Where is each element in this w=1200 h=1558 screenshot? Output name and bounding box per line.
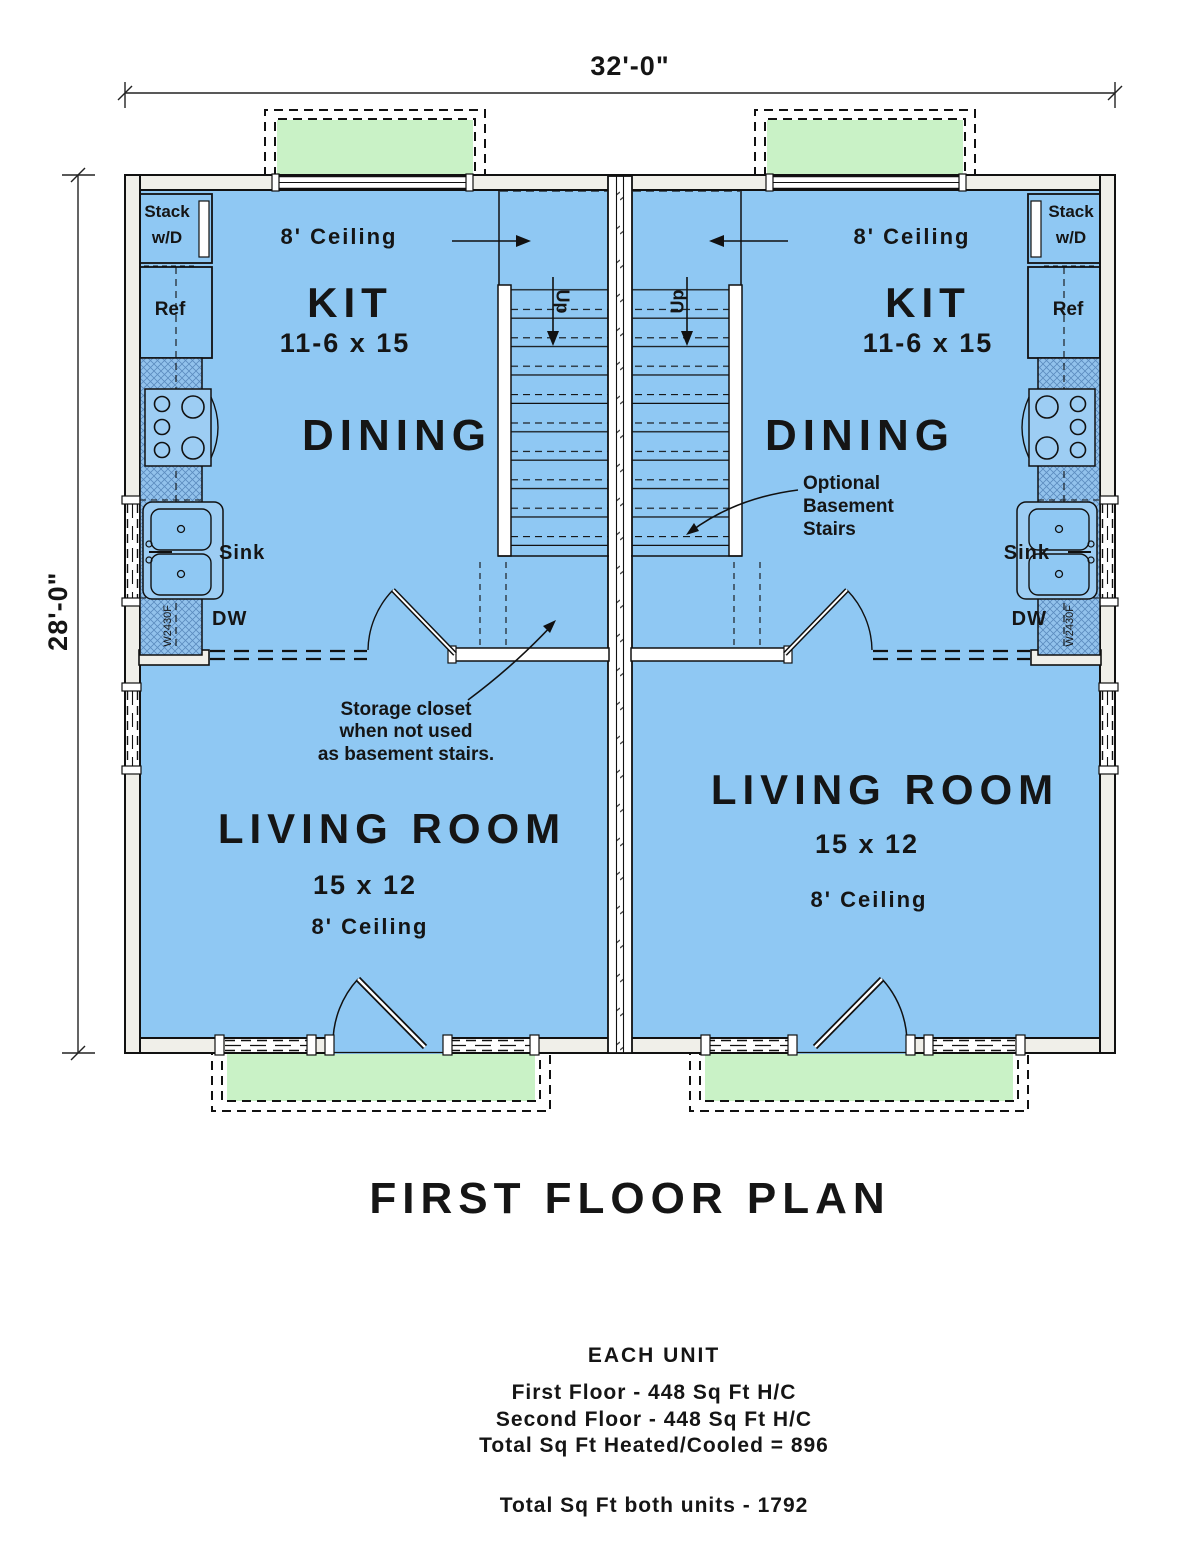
- sink-label-right: Sink: [958, 543, 1050, 564]
- sink-label-left: Sink: [219, 543, 265, 564]
- kitchen-label-right: KIT: [828, 281, 1028, 325]
- range-stove: [145, 389, 218, 466]
- porch-bottom-left: [227, 1053, 535, 1101]
- optional-note-right: Optional Basement Stairs: [803, 472, 963, 542]
- porch-top-left: [277, 120, 473, 176]
- living-room-label-right: LIVING ROOM: [710, 768, 1060, 812]
- living-ceiling-left: 8' Ceiling: [270, 915, 470, 938]
- kitchen-size-left: 11-6 x 15: [245, 329, 445, 357]
- footer-first-floor: First Floor - 448 Sq Ft H/C: [354, 1382, 954, 1404]
- note-line2: when not used: [300, 721, 512, 743]
- range-stove: [1022, 389, 1095, 466]
- note-line1: Storage closet: [300, 699, 512, 721]
- up-label-left: Up: [553, 279, 572, 323]
- wall-right: [1100, 175, 1115, 1053]
- party-wall: [608, 176, 632, 1053]
- kitchen-ceiling-label-right: 8' Ceiling: [812, 225, 1012, 248]
- note-line3: as basement stairs.: [300, 744, 512, 766]
- dimension-height-label: 28'-0": [44, 561, 72, 661]
- dimension-width-label: 32'-0": [560, 52, 700, 80]
- cabinet-code-right: W2430F: [1065, 586, 1077, 666]
- kitchen-label-left: KIT: [250, 281, 450, 325]
- living-size-left: 15 x 12: [265, 871, 465, 899]
- note-line3: Stairs: [803, 518, 963, 541]
- floor-plan-page: 32'-0" 28'-0" 8' Ceiling KIT 11-6 x 15 D…: [0, 0, 1200, 1558]
- stack-wd-label-left: Stack w/D: [136, 199, 198, 252]
- closet-wall: [455, 648, 609, 661]
- kitchen-right-unit: [1017, 194, 1100, 655]
- dining-label-right: DINING: [730, 413, 990, 459]
- kitchen-size-right: 11-6 x 15: [828, 329, 1028, 357]
- closet-wall: [631, 648, 785, 661]
- porch-top-right: [767, 120, 963, 176]
- stack-line2: w/D: [136, 225, 198, 251]
- wall-left: [125, 175, 140, 1053]
- stack-line1: Stack: [1040, 199, 1102, 225]
- stack-line1: Stack: [136, 199, 198, 225]
- footer-each-unit: EACH UNIT: [354, 1345, 954, 1367]
- footer-total-both: Total Sq Ft both units - 1792: [354, 1495, 954, 1517]
- up-label-right: Up: [669, 279, 688, 323]
- ref-label-right: Ref: [1037, 300, 1099, 320]
- dining-label-left: DINING: [267, 413, 527, 459]
- note-line1: Optional: [803, 472, 963, 495]
- stack-line2: w/D: [1040, 225, 1102, 251]
- living-ceiling-right: 8' Ceiling: [769, 888, 969, 911]
- page-title: FIRST FLOOR PLAN: [320, 1176, 940, 1222]
- kitchen-left-unit: [140, 194, 223, 655]
- dw-label-left: DW: [212, 609, 247, 630]
- living-size-right: 15 x 12: [767, 830, 967, 858]
- living-room-label-left: LIVING ROOM: [217, 807, 567, 851]
- porch-bottom-right: [705, 1053, 1013, 1101]
- stack-wd-label-right: Stack w/D: [1040, 199, 1102, 252]
- cabinet-code-left: W2430F: [163, 586, 175, 666]
- dw-label-right: DW: [955, 609, 1047, 630]
- footer-second-floor: Second Floor - 448 Sq Ft H/C: [354, 1409, 954, 1431]
- kitchen-sink: [143, 502, 223, 599]
- note-line2: Basement: [803, 495, 963, 518]
- storage-note-left: Storage closet when not used as basement…: [300, 699, 512, 766]
- footer-total-hc: Total Sq Ft Heated/Cooled = 896: [354, 1435, 954, 1457]
- kitchen-ceiling-label-left: 8' Ceiling: [239, 225, 439, 248]
- ref-label-left: Ref: [139, 300, 201, 320]
